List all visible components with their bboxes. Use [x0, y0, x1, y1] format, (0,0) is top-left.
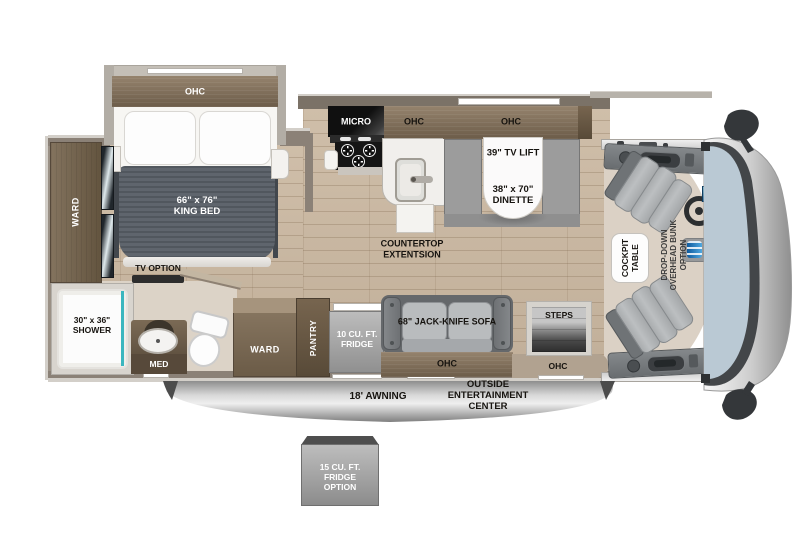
entry-ohc-label: OHC [549, 361, 568, 371]
tv-option-label: TV OPTION [135, 263, 181, 273]
shower-glass-accent [121, 291, 124, 366]
oec-line2: ENTERTAINMENT [448, 390, 529, 401]
awning-label: 18' AWNING [349, 391, 406, 403]
sofa-bolt-4 [501, 341, 505, 345]
king-bed-label: 66" x 76" KING BED [174, 195, 220, 217]
dinette-name-line: DINETTE [493, 195, 534, 206]
rv-floorplan: OHC 66" x 76" KING BED WARD TV OPTION 30… [0, 0, 800, 545]
shower-name-line: SHOWER [73, 325, 111, 335]
fridge-option-line2: FRIDGE [320, 472, 361, 482]
fridge-option-line3: OPTION [320, 482, 361, 492]
fridge-10-label: 10 CU. FT. FRIDGE [337, 329, 378, 349]
dinette-label: 38" x 70" DINETTE [493, 184, 534, 206]
dinette-bench-right [542, 139, 580, 216]
nightstand-right [271, 149, 289, 179]
shower-size-line: 30" x 36" [73, 315, 111, 325]
med-label: MED [150, 359, 169, 369]
hood-handle-1 [340, 137, 351, 141]
sofa-seat-front [402, 339, 492, 352]
ward-bottom-top-shelf [233, 298, 297, 313]
micro-label: MICRO [341, 117, 371, 128]
a-pillar-bottom [701, 374, 710, 383]
burner-icon-2 [363, 144, 376, 157]
cooktop-base [338, 167, 384, 175]
dinette-cabinet-end [578, 106, 592, 139]
cluster-screen-bottom [654, 359, 676, 367]
oec-line1: OUTSIDE [448, 379, 529, 390]
countertop-line2: EXTENTSION [381, 249, 444, 260]
kitchen-faucet-base [411, 177, 416, 182]
shower-label: 30" x 36" SHOWER [73, 315, 111, 335]
awning-graphic [158, 377, 620, 429]
front-cap-graphic [682, 95, 800, 430]
tv-lift-label: 39" TV LIFT [487, 147, 540, 158]
cockpit-table-line2: TABLE [630, 239, 640, 277]
bedroom-window [147, 68, 243, 74]
dinette-window [458, 98, 560, 105]
side-mirror-top-icon [724, 110, 759, 141]
pillow-left [124, 111, 196, 165]
dinette-bench-left [444, 139, 482, 216]
ward-mirror-door-top [101, 146, 114, 210]
kitchen-partition-wall [305, 133, 313, 212]
entertainment-center-label: OUTSIDE ENTERTAINMENT CENTER [448, 379, 529, 413]
sofa-bolt-1 [390, 303, 394, 307]
bed-name-line: KING BED [174, 206, 220, 217]
ward-mirror-door-bottom [101, 214, 114, 278]
tv-option-cabinet [132, 275, 184, 283]
side-mirror-bottom-icon [722, 389, 757, 420]
hood-handle-2 [358, 137, 371, 141]
fridge-slide-strip [333, 303, 382, 311]
dinette-size-line: 38" x 70" [493, 184, 534, 195]
pantry-label: PANTRY [308, 320, 318, 356]
burner-icon-1 [341, 144, 354, 157]
countertop-extension-label: COUNTERTOP EXTENTSION [381, 238, 444, 259]
bedroom-ohc-label: OHC [185, 87, 205, 98]
sofa-bolt-2 [390, 341, 394, 345]
steps-label: STEPS [545, 310, 573, 320]
a-pillar-top [701, 142, 710, 151]
dinette-ohc-label: OHC [501, 117, 521, 128]
fridge-option-line1: 15 CU. FT. [320, 462, 361, 472]
cockpit-table-line1: COCKPIT [620, 239, 630, 277]
bath-sink-drain [156, 339, 160, 343]
countertop-line1: COUNTERTOP [381, 238, 444, 249]
oec-line3: CENTER [448, 402, 529, 413]
fridge-option-label: 15 CU. FT. FRIDGE OPTION [320, 462, 361, 492]
bunk-line2: OVERHEAD BUNK [669, 220, 678, 291]
bunk-line1: DROP-DOWN [660, 220, 669, 291]
sofa-label: 68" JACK-KNIFE SOFA [398, 317, 496, 328]
counter-side-ledge [324, 150, 338, 170]
kitchen-ohc-label: OHC [404, 117, 424, 128]
pillow-right [199, 111, 271, 165]
fridge-name-line: FRIDGE [337, 339, 378, 349]
instrument-cluster-bottom [647, 355, 686, 373]
sofa-bolt-3 [501, 303, 505, 307]
cockpit-table-label: COCKPIT TABLE [620, 239, 640, 277]
countertop-extension [396, 204, 434, 233]
bed-size-line: 66" x 76" [174, 195, 220, 206]
ward-left-label: WARD [71, 197, 82, 227]
ward-bottom-label: WARD [250, 345, 280, 356]
sofa-ohc-label: OHC [437, 359, 457, 370]
fridge-size-line: 10 CU. FT. [337, 329, 378, 339]
